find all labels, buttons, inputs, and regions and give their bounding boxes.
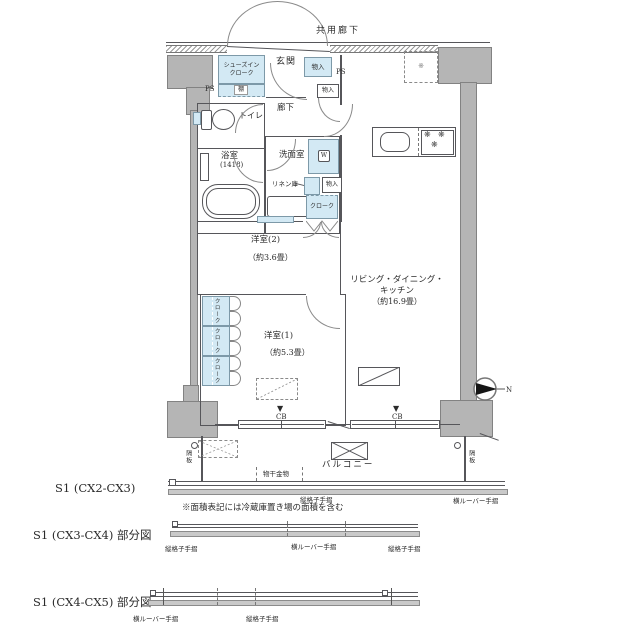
rail2-right-label: 縦格子手摺 — [388, 545, 421, 553]
room2-label: 洋室(2) — [251, 235, 280, 246]
rail3-line-1 — [150, 592, 418, 593]
bathtub-inner — [206, 188, 256, 215]
rail2-center-label: 横ルーバー手摺 — [291, 543, 336, 551]
bath-counter — [200, 153, 209, 181]
rail1-band — [168, 489, 508, 495]
window-room1-inner-line — [240, 424, 324, 425]
kitchen-counter-divider — [418, 128, 419, 156]
sic-line2: クローク — [229, 70, 253, 78]
rail3-band — [148, 600, 420, 606]
rail3-solid-tick-2 — [391, 588, 392, 605]
entry-storage-small-label: 物入 — [317, 84, 339, 98]
rail2-line-1 — [172, 524, 418, 525]
section1-label: S1 (CX2-CX3) — [55, 481, 135, 496]
toilet-paper-holder — [193, 112, 201, 125]
fridge-space: ※ — [404, 51, 438, 83]
wall-entry-ldk-upper — [340, 55, 342, 105]
floor-plan-page: 共用廊下 玄関 シューズイン クローク 棚 PS 物入 PS 物入 廊下 トイレ… — [0, 0, 624, 640]
top-wall-line — [166, 42, 490, 43]
linen-closet — [304, 177, 320, 195]
top-wall-hatch-left — [166, 45, 227, 53]
area-note: ※面積表記には冷蔵庫置き場の面積を含む — [182, 503, 344, 514]
rail1-right-label: 横ルーバー手摺 — [453, 497, 498, 505]
room1-closet-1: クローク — [202, 296, 230, 326]
sic-shelf-label: 棚 — [234, 85, 248, 95]
room1-size-label: （約5.3畳） — [265, 348, 310, 358]
rail3-line-2 — [150, 596, 418, 597]
entry-cloak-label: クローク — [306, 197, 338, 217]
balcony-label: バルコニー — [322, 460, 374, 471]
balcony-hatch-box-x — [331, 442, 368, 460]
ldk-size: （約16.9畳） — [372, 297, 422, 307]
shoes-in-cloak-label: シューズイン クローク — [218, 58, 265, 82]
stove-burner-2: ❋ — [438, 130, 445, 140]
rail2-band — [170, 531, 420, 537]
mid-storage-label: 物入 — [322, 177, 342, 193]
wall-washer-top — [304, 136, 341, 137]
ldk-line1: リビング・ダイニング・ — [350, 275, 444, 286]
ps-right-label: PS — [336, 68, 346, 77]
laundry-label: 物干金物 — [263, 470, 289, 478]
washbasin-counter — [267, 196, 311, 217]
sic-line1: シューズイン — [224, 62, 260, 70]
north-compass: N — [468, 372, 514, 406]
room1-closet-2: クローク — [202, 326, 230, 356]
ac-unit-x — [198, 440, 238, 458]
rail2-line-2 — [172, 527, 418, 528]
ps-left-label: PS — [205, 85, 215, 94]
kitchen-sink — [380, 132, 410, 152]
north-label: N — [506, 386, 512, 394]
entry-storage-label: 物入 — [304, 57, 332, 77]
stove-burner-1: ❋ — [424, 130, 431, 140]
ldk-counter-box-diagonal — [358, 367, 400, 386]
room2-size-label: （約3.6畳） — [248, 253, 293, 263]
rail2-end-square — [172, 521, 178, 527]
laundry-tick-1 — [256, 467, 257, 481]
genkan-door-arc — [270, 63, 307, 100]
rail3-solid-tick-1 — [163, 588, 164, 605]
corridor-label: 廊下 — [277, 103, 294, 114]
rail1-end-square — [169, 479, 176, 486]
room1-dashed-box-diagonal — [256, 378, 298, 400]
rail3-square-1 — [150, 590, 156, 596]
balcony-partition-right — [464, 436, 466, 481]
room1-closet-3: クローク — [202, 356, 230, 386]
washer-label-box: W — [318, 150, 330, 162]
toilet-bowl — [212, 109, 235, 130]
pillar-top-right — [438, 47, 492, 84]
laundry-tick-2 — [302, 467, 303, 481]
washbasin-lower-strip — [257, 216, 294, 223]
section3-label: S1 (CX4-CX5) 部分図 — [33, 595, 151, 610]
rail3-left-label: 横ルーバー手摺 — [133, 615, 178, 623]
partition-left-label: 隔板 — [184, 450, 192, 464]
cb-label-1: CB — [276, 413, 287, 422]
ldk-label-block: リビング・ダイニング・ キッチン （約16.9畳） — [337, 273, 457, 309]
closet-dash-line — [212, 297, 213, 385]
cb-label-2: CB — [392, 413, 403, 422]
rail2-left-label: 縦格子手摺 — [165, 545, 198, 553]
stove-burner-3: ❋ — [431, 140, 438, 150]
rail3-dash-tick-2 — [255, 588, 256, 605]
rail3-square-2 — [382, 590, 388, 596]
rail1-line-1 — [168, 481, 505, 482]
entrance-door-leaf — [227, 46, 330, 52]
linen-label: リネン庫 — [272, 180, 298, 188]
room1-label: 洋室(1) — [264, 331, 293, 342]
pillar-top-left — [167, 55, 213, 89]
section2-label: S1 (CX3-CX4) 部分図 — [33, 528, 151, 543]
wall-right — [460, 82, 477, 402]
rail3-center-label: 縦格子手摺 — [246, 615, 279, 623]
balcony-circle-left — [191, 442, 198, 449]
rail2-tick-1 — [287, 521, 288, 536]
rail3-dash-tick-1 — [217, 588, 218, 605]
ldk-line2: キッチン — [380, 286, 414, 297]
toilet-tank — [201, 110, 212, 130]
corridor-ldk-door-arc — [324, 104, 353, 137]
common-corridor-label: 共用廊下 — [316, 26, 360, 38]
partition-right-label: 隔板 — [467, 450, 475, 464]
entrance-door-swing-arc — [227, 1, 328, 46]
balcony-circle-right — [454, 442, 461, 449]
rail1-line-2 — [168, 485, 505, 486]
rail2-tick-2 — [345, 521, 346, 536]
